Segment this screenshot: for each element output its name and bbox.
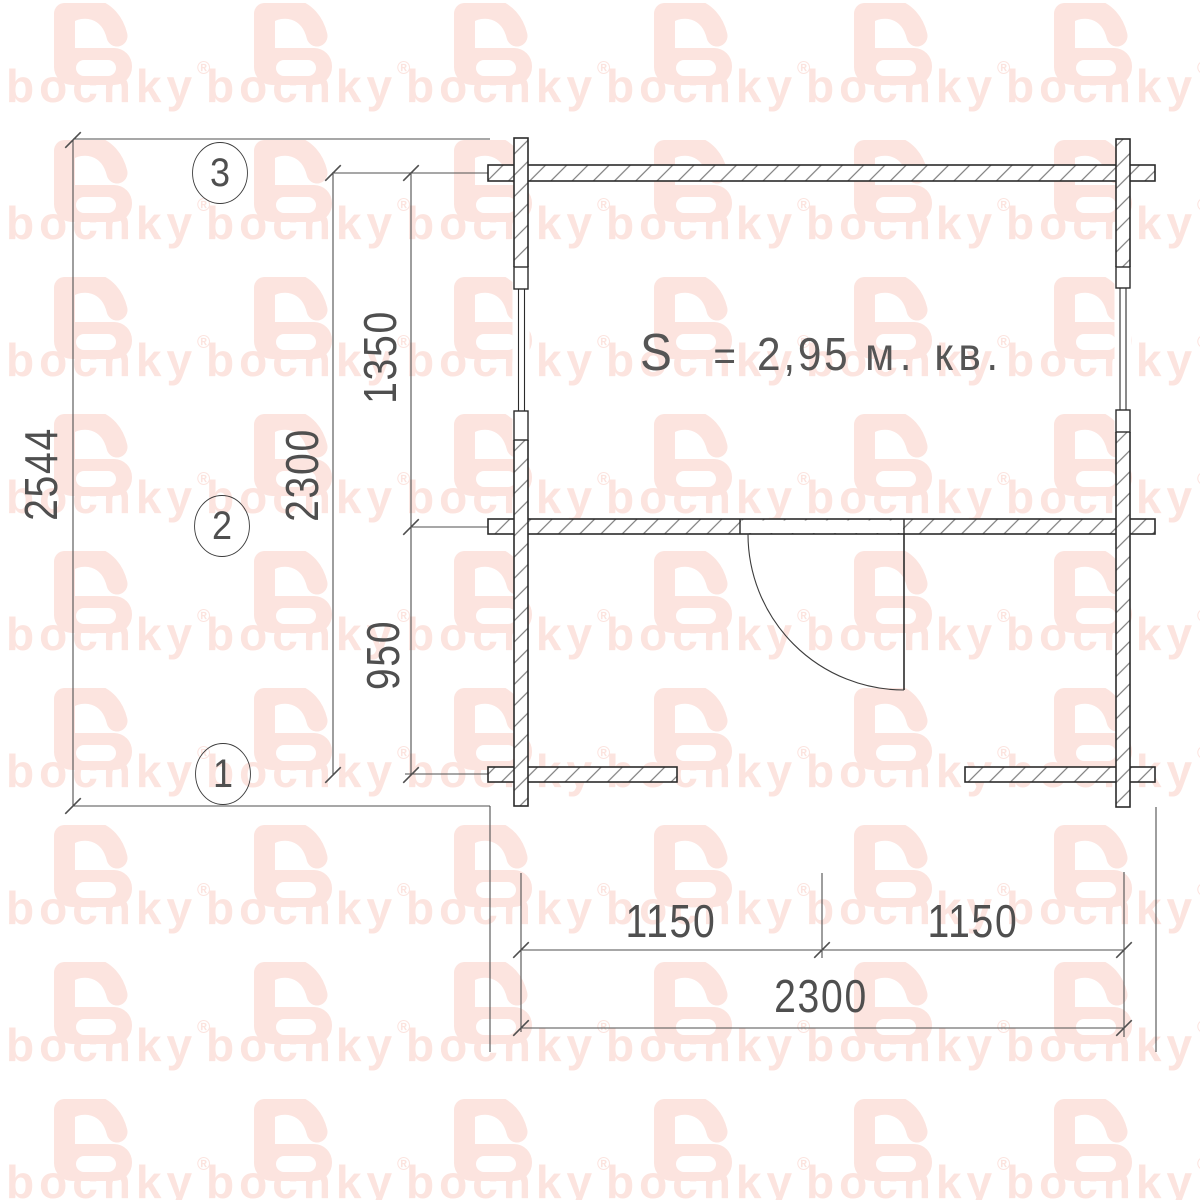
window-right	[1115, 267, 1132, 432]
door	[740, 519, 904, 690]
axis-bubble-3: 3	[192, 142, 248, 204]
window-left	[513, 267, 530, 440]
axis-bubble-2: 2	[194, 495, 250, 557]
area-equals: =	[713, 335, 738, 377]
wall-top	[488, 165, 1155, 181]
wall-left	[514, 138, 528, 806]
dim-label-left-total: 2300	[279, 428, 325, 522]
dim-label-bottom-total: 2300	[774, 973, 868, 1019]
dim-label-overall-height: 2544	[18, 427, 64, 521]
area-value: 2,95	[757, 331, 850, 377]
dim-label-bottom-left: 1150	[626, 898, 717, 944]
dim-label-bottom-right: 1150	[928, 898, 1019, 944]
door-swing-arc	[748, 534, 904, 690]
axis-bubble-1: 1	[195, 743, 251, 805]
wall-right	[1116, 139, 1130, 807]
axis-number: 2	[212, 504, 232, 549]
floor-plan-page: bochky® bochky® bochky® bochky® bochky® …	[0, 0, 1200, 1200]
axis-number: 1	[213, 752, 233, 797]
area-symbol: S	[640, 327, 675, 379]
dim-label-left-top: 1350	[357, 310, 403, 404]
axis-number: 3	[210, 151, 230, 196]
dim-label-left-bottom: 950	[360, 620, 406, 690]
area-unit: м. кв.	[865, 331, 1003, 377]
room-area-label: S = 2,95 м. кв.	[640, 327, 1004, 379]
floor-plan-drawing	[0, 0, 1200, 1200]
walls	[488, 138, 1155, 807]
